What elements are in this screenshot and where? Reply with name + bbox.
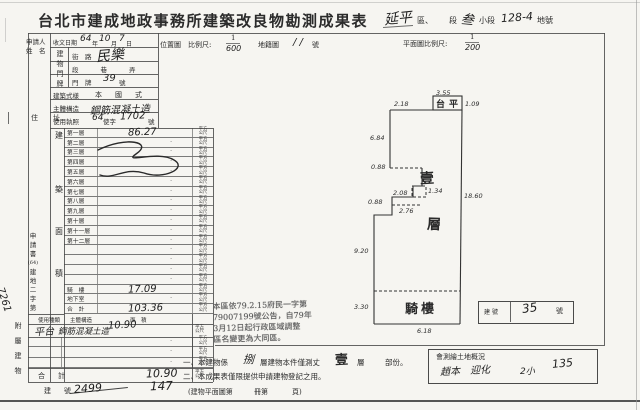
- table-row: 平方公尺: [28, 337, 213, 347]
- annex-top-line: [28, 314, 64, 315]
- page-top-edge: [0, 2, 640, 3]
- style-value: 本 國 式: [95, 90, 145, 100]
- plan-no-handwritten: 35: [521, 300, 538, 316]
- vertical-label-char: 門: [55, 69, 65, 79]
- table-row: 第七層平方公尺: [64, 187, 213, 197]
- surveyor-name-handwritten: 趙本 迎化: [440, 361, 491, 379]
- plan-no-label: 建號: [484, 307, 500, 316]
- row-value-blank: [62, 359, 192, 366]
- unit-label: 平方公尺: [192, 255, 213, 264]
- annex-total-top: [28, 368, 213, 369]
- scale-numerator: 1: [231, 34, 235, 42]
- table-row: 平方公尺: [64, 255, 213, 265]
- plan-dimension: 3.30: [354, 303, 368, 311]
- unit-label: 平方公尺: [192, 337, 213, 346]
- vertical-label-char: 字: [27, 295, 39, 304]
- area-label-char-2: 築: [55, 184, 63, 195]
- row-label: 第十一層: [64, 226, 98, 235]
- plan-ref-1: (建物平面圖第: [188, 387, 233, 397]
- door-number-suffix: 號: [119, 77, 126, 87]
- row-label: [64, 245, 98, 254]
- application-no-label: 申請書(64)建地二字第: [27, 232, 39, 313]
- row-label: 地下室: [64, 294, 98, 303]
- plan-scale-label: 平面圖比例尺:: [403, 39, 447, 49]
- subsection-label: 小段: [479, 15, 495, 26]
- received-month-handwritten: 10: [99, 34, 110, 44]
- row-value-blank: [98, 188, 192, 195]
- cadastral-map-label: 地籍圖: [258, 40, 279, 50]
- row-value-blank: [98, 256, 192, 263]
- row-value-blank: [98, 246, 192, 253]
- door-label-divider: [68, 47, 69, 87]
- table-row: 第十層平方公尺: [64, 216, 213, 226]
- table-row: 平方公尺: [64, 265, 213, 275]
- unit-label: 平方公尺: [192, 275, 213, 284]
- note1-floors-handwritten: 捌: [243, 351, 255, 368]
- vertical-label-char: 地: [27, 277, 39, 286]
- plan-dimension: 6.18: [417, 327, 431, 335]
- floor-one-stamp-b: 層: [427, 214, 442, 234]
- unit-label: 平方公尺: [192, 294, 213, 303]
- row-label: 第九層: [64, 206, 98, 215]
- vertical-label-char: 物: [55, 59, 65, 69]
- vertical-label-char: 屬: [13, 334, 23, 349]
- unit-label: 平方公尺: [192, 347, 213, 356]
- scan-artifact: [5, 18, 6, 42]
- vertical-label-char: 物: [13, 364, 23, 379]
- row-value-blank: [98, 266, 192, 273]
- vertical-label-char: 第: [27, 304, 39, 313]
- door-number-handwritten: 39: [103, 73, 116, 84]
- annex-row-unit: 平方公尺: [195, 326, 204, 335]
- district-suffix-label: 區、: [417, 15, 433, 26]
- vertical-label-char: 建: [13, 349, 23, 364]
- day-label: 日: [126, 39, 132, 48]
- received-date-label: 收文日期: [53, 38, 77, 47]
- row-label: [64, 265, 98, 274]
- scanned-survey-form: 台北市建成地政事務所建築改良物勘測成果表 延平 區、 段 叁 小段 128-4 …: [0, 0, 640, 410]
- plan-dimension: 2.76: [399, 207, 413, 215]
- note1-mid: 層建物本件僅測丈: [260, 357, 320, 368]
- row-label: [64, 275, 98, 284]
- row-label: [28, 347, 62, 356]
- scale-denominator-handwritten: 600: [226, 44, 241, 53]
- section-label: 段: [449, 15, 457, 26]
- vertical-label-char: 二: [27, 286, 39, 295]
- row-label: 第八層: [64, 197, 98, 206]
- vertical-label-char: 申: [27, 232, 39, 241]
- area-label-char-1: 建: [55, 130, 63, 141]
- license-number-handwritten: 1702: [120, 110, 146, 122]
- row-label: [64, 255, 98, 264]
- building-no-label: 建 號: [44, 386, 74, 396]
- street-label: 街 路: [72, 51, 92, 61]
- row-label: 第十二層: [64, 236, 98, 245]
- note1-tail: 部份。: [385, 357, 408, 368]
- row-label: 第十層: [64, 216, 98, 225]
- unit-label: 平方公尺: [192, 245, 213, 254]
- vertical-label-char: 牌: [55, 79, 65, 89]
- plan-dimension: 3.55: [436, 89, 450, 97]
- table-row: 第九層平方公尺: [64, 206, 213, 216]
- row-value-blank: [98, 197, 192, 204]
- note1-unit: 層: [357, 357, 365, 368]
- page-bottom-edge: [0, 400, 640, 402]
- frame-top: [28, 33, 605, 34]
- vertical-label-char: 建: [27, 268, 39, 277]
- balcony-stamp: 台平: [436, 97, 462, 110]
- row-value-blank: [98, 237, 192, 244]
- handwritten-scribble: [92, 136, 196, 184]
- application-no-handwritten: 7261: [0, 286, 13, 314]
- unit-label: 平方公尺: [192, 285, 213, 294]
- address-label: 住 址: [31, 113, 64, 123]
- frame-left: [28, 33, 29, 382]
- plan-dimension: 1.34: [428, 187, 442, 195]
- table-row: 合 計103.36平方公尺: [64, 304, 213, 314]
- row-value-blank: [98, 227, 192, 234]
- plan-no-suffix: 號: [556, 306, 563, 316]
- margin-tick: [8, 112, 9, 124]
- area-label-char-4: 積: [55, 268, 63, 279]
- row-label: 第七層: [64, 187, 98, 196]
- applicant-label-2: 姓 名: [26, 45, 46, 55]
- annex-bottom-line: [28, 382, 213, 383]
- plan-ref-2: 冊第: [254, 387, 268, 397]
- unit-label: 平方公尺: [192, 216, 213, 225]
- row-line-4: [50, 87, 158, 88]
- unit-label: 平方公尺: [192, 265, 213, 274]
- annex-header-structure: 主體構造: [70, 316, 92, 324]
- plan-dimension: 2.08: [393, 189, 407, 197]
- vertical-label-char: (64): [27, 259, 39, 268]
- style-label: 建築式樣: [53, 90, 79, 100]
- row-label: [28, 337, 62, 346]
- scale-label: 比例尺:: [188, 40, 211, 50]
- plan-scale-denominator-handwritten: 200: [465, 43, 480, 52]
- row-value-blank: [62, 348, 192, 355]
- cadastral-handwritten: / /: [293, 37, 303, 48]
- unit-label: 平方公尺: [192, 187, 213, 196]
- arcade-stamp: 騎樓: [405, 298, 437, 318]
- vertical-label-char: 書: [27, 250, 39, 259]
- received-day-handwritten: 7: [119, 34, 125, 44]
- row-value-blank: [98, 207, 192, 214]
- area-label-char-3: 面: [55, 226, 63, 237]
- annex-area-handwritten: 10.90: [108, 319, 137, 331]
- unit-label: 平方公尺: [192, 197, 213, 206]
- plan-dimension: 6.84: [370, 134, 384, 142]
- plan-dimension: 18.60: [464, 192, 483, 200]
- note1-prefix: 一、本建物係: [183, 357, 228, 368]
- license-suffix: 號: [148, 116, 155, 126]
- vertical-label-char: 建: [55, 49, 65, 59]
- row-value-blank: [98, 276, 192, 283]
- street-handwritten: 民樂: [95, 44, 125, 66]
- plan-ref-3: 頁): [292, 387, 302, 397]
- subsection-handwritten: 叁: [460, 8, 475, 28]
- table-row: 第八層平方公尺: [64, 197, 213, 207]
- vertical-label-char: 請: [27, 241, 39, 250]
- building-no-handwritten: 147: [150, 379, 173, 394]
- vertical-label-char: 附: [13, 319, 23, 334]
- parcel-handwritten: 128-4: [501, 10, 534, 25]
- floor-one-stamp-a: 壹: [419, 168, 434, 189]
- row-label: 騎 樓: [64, 285, 98, 294]
- row-value-handwritten: 103.36: [98, 301, 192, 315]
- annex-structure-handwritten: 鋼筋混凝土造: [58, 325, 109, 337]
- form-title: 台北市建成地政事務所建築改良物勘測成果表: [38, 10, 368, 31]
- note1-floor-stamp: 壹: [335, 349, 349, 369]
- plan-no-box-divider: [510, 301, 511, 322]
- plan-dimension: 2.18: [394, 100, 408, 108]
- plan-dimension: 1.09: [465, 100, 479, 108]
- plan-dimension: 9.20: [354, 247, 368, 255]
- door-plate-label: 門 牌: [72, 77, 92, 87]
- unit-label: 平方公尺: [192, 304, 213, 313]
- upper-table-right: [158, 33, 159, 128]
- annex-total-label: 合 計: [38, 371, 68, 381]
- unit-label: 平方公尺: [192, 236, 213, 245]
- note2-text: 二、本成果表僅限提供申請建物登記之用。: [183, 371, 326, 382]
- table-row: 平方公尺: [64, 245, 213, 255]
- unit-label: 平方公尺: [192, 206, 213, 215]
- plan-scale-numerator: 1: [470, 33, 474, 41]
- row-value-blank: [98, 217, 192, 224]
- unit-label: 平方公尺: [192, 226, 213, 235]
- table-row: 第十二層平方公尺: [64, 236, 213, 246]
- license-year-handwritten: 64: [92, 113, 103, 123]
- door-block-label: 建物門牌: [55, 49, 65, 89]
- location-map-label: 位置圖: [160, 40, 181, 50]
- structure-label: 主體構造: [53, 103, 79, 113]
- parcel-label: 地號: [537, 15, 553, 26]
- row-value-blank: [62, 338, 192, 345]
- cadastral-suffix: 號: [312, 40, 319, 50]
- license-mid-label: 使字: [103, 116, 116, 126]
- plan-dimension: 0.88: [368, 198, 382, 206]
- plan-dimension: 0.88: [371, 163, 385, 171]
- annex-label: 附屬建物: [13, 319, 23, 379]
- surveyor-extra-handwritten: 2小: [520, 364, 535, 377]
- table-row: 第十一層平方公尺: [64, 226, 213, 236]
- received-year-handwritten: 64: [80, 34, 91, 44]
- surveyor-number-handwritten: 135: [551, 356, 573, 371]
- row-label: 合 計: [64, 304, 98, 313]
- table-row: 騎 樓17.09平方公尺: [64, 285, 213, 295]
- building-no-crossed-handwritten: 2499: [74, 381, 103, 396]
- row-label: [28, 358, 62, 367]
- page-right-edge: [636, 0, 637, 410]
